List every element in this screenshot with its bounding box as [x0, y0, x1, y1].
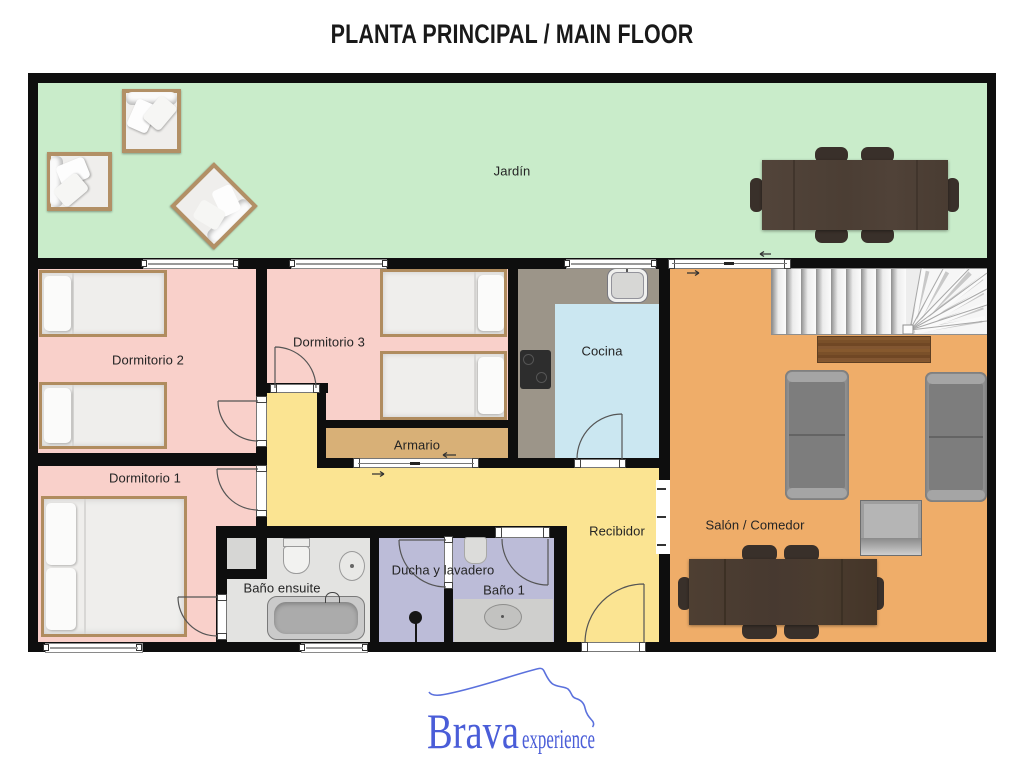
svg-text:Brava: Brava	[427, 703, 519, 759]
svg-text:experience: experience	[522, 724, 595, 754]
